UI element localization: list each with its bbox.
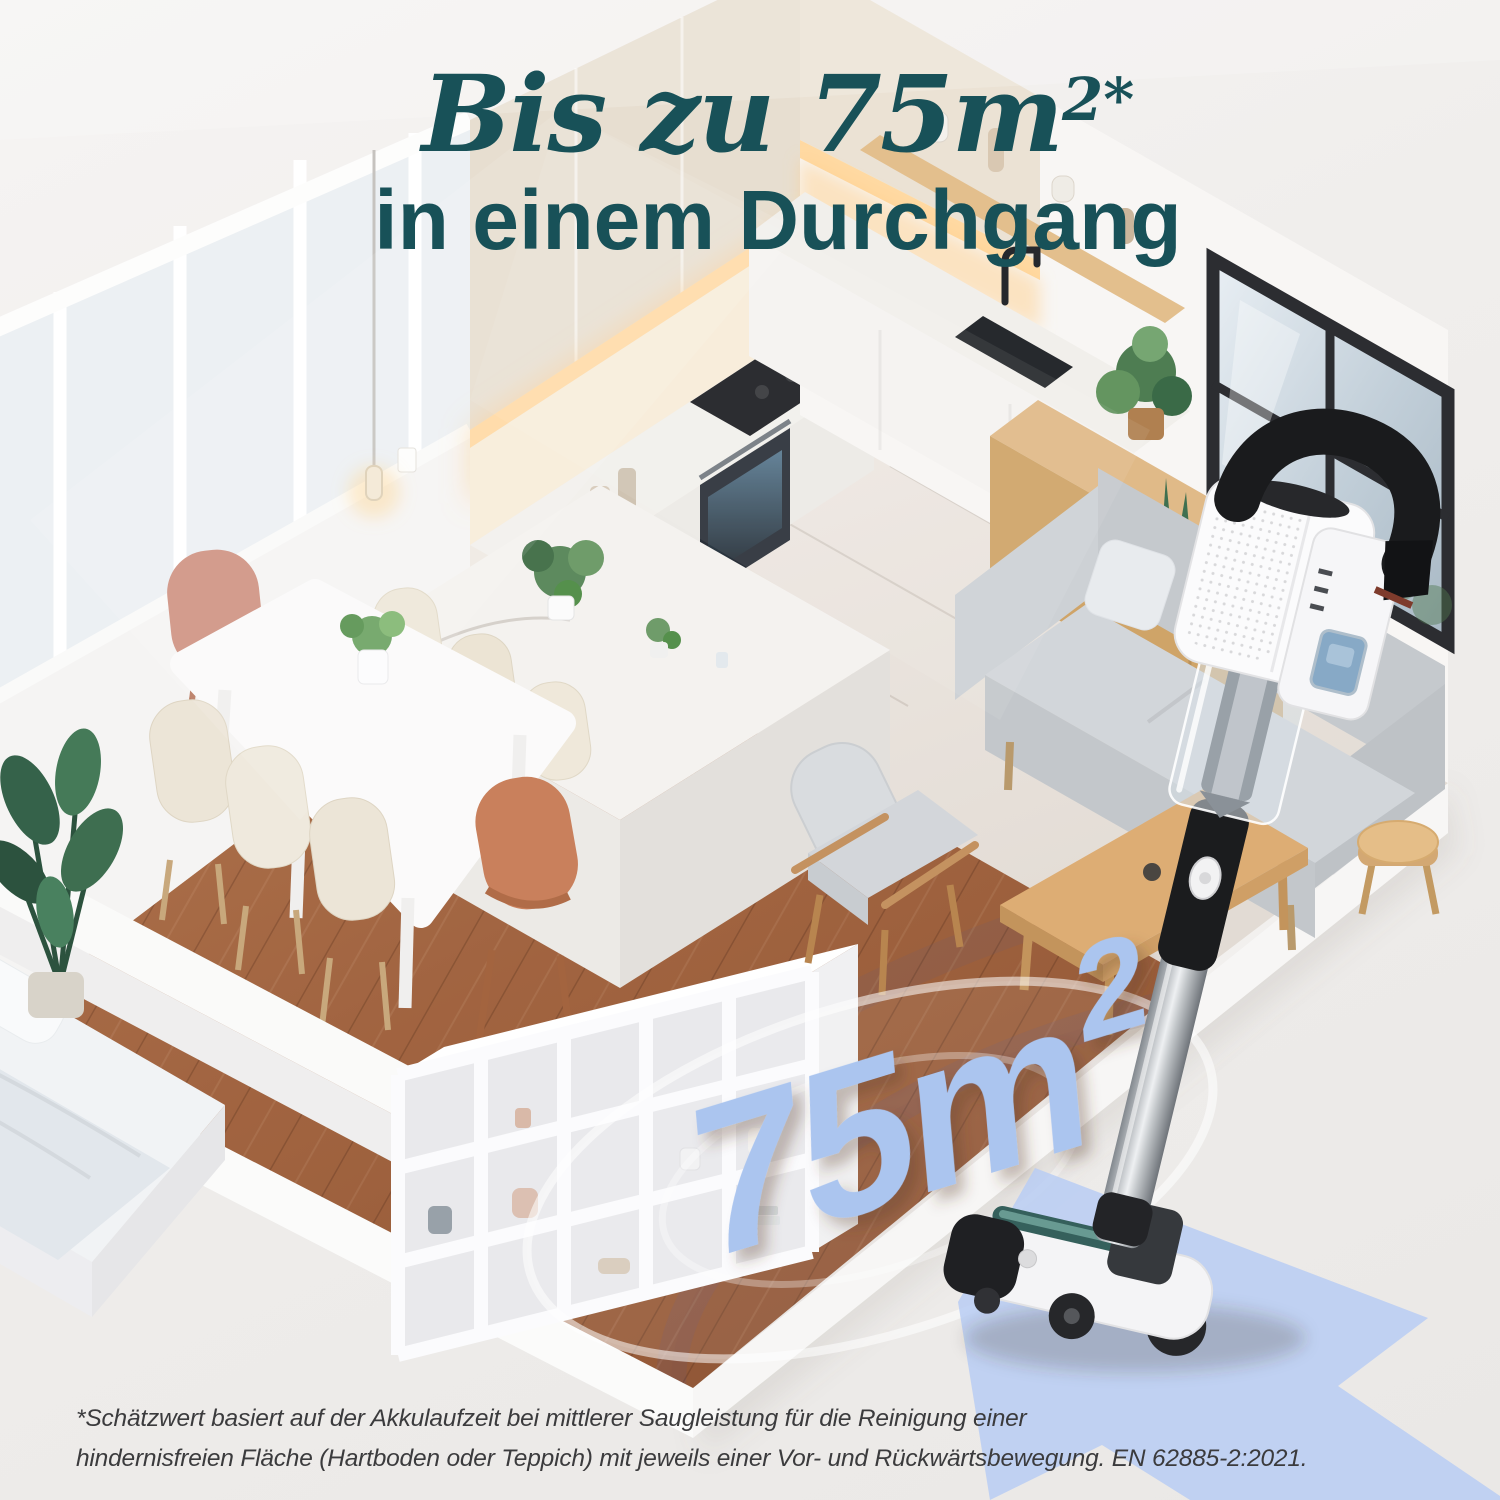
footnote: *Schätzwert basiert auf der Akkulaufzeit… bbox=[76, 1399, 1456, 1479]
isometric-apartment-scene: 75m2 bbox=[0, 0, 1500, 1500]
footnote-line2: hindernisfreien Fläche (Hartboden oder T… bbox=[76, 1439, 1456, 1479]
footnote-line1: *Schätzwert basiert auf der Akkulaufzeit… bbox=[76, 1399, 1456, 1439]
product-marketing-image: 75m2 bbox=[0, 0, 1500, 1500]
